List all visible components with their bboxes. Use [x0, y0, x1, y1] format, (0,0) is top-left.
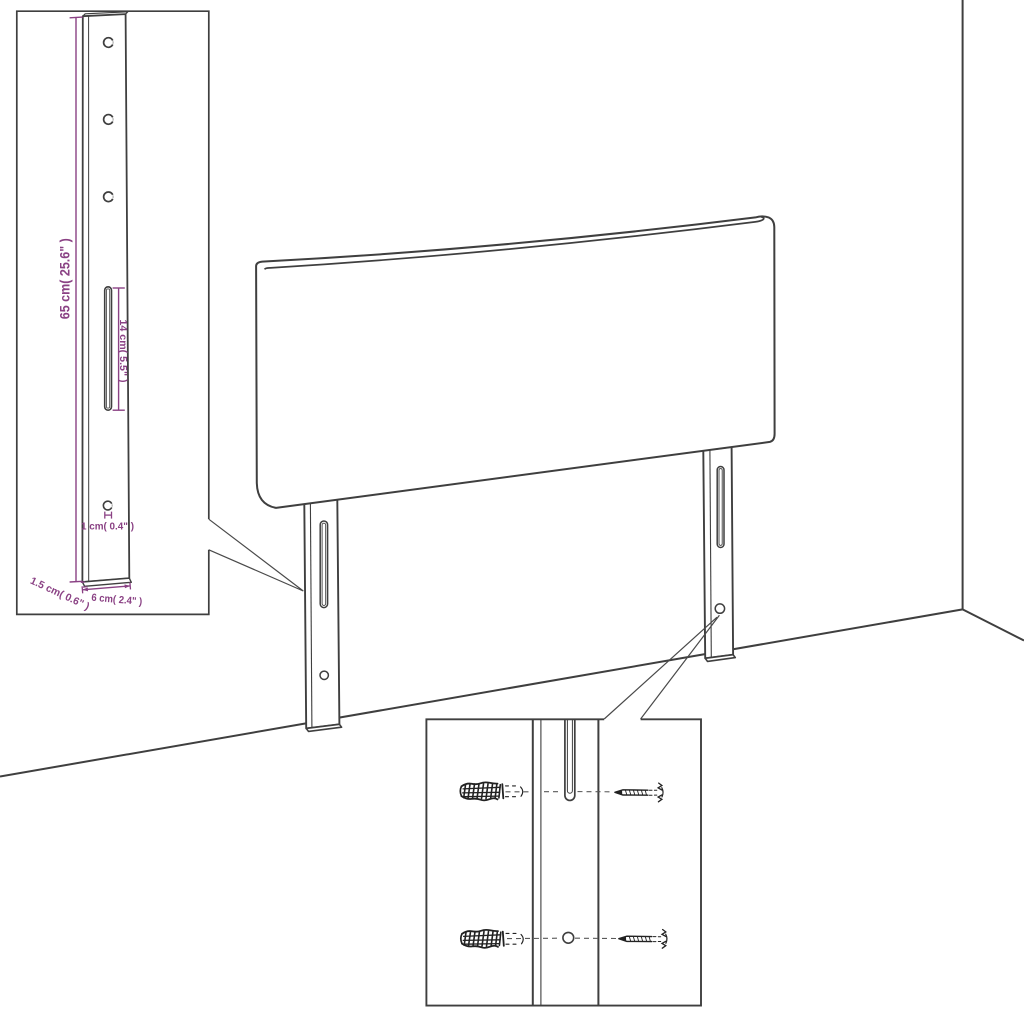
svg-text:1 cm( 0.4" ): 1 cm( 0.4" ) [81, 521, 134, 532]
svg-text:65 cm( 25.6" ): 65 cm( 25.6" ) [57, 238, 73, 319]
svg-text:14 cm( 5.5" ): 14 cm( 5.5" ) [117, 320, 128, 383]
